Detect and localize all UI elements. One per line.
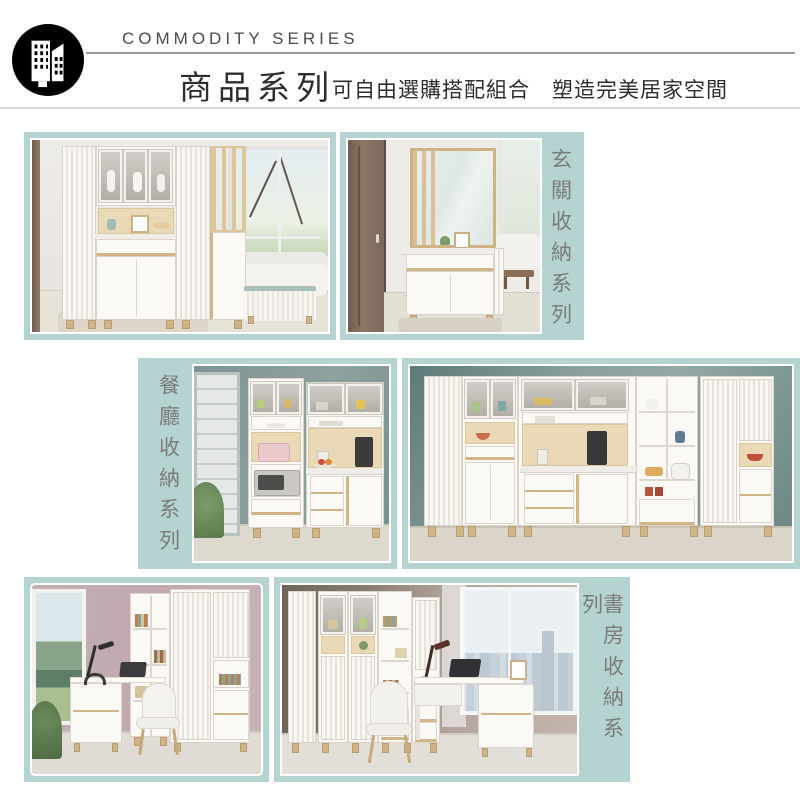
- cups: [319, 421, 343, 426]
- section-label-study: 書房收納系列: [581, 593, 623, 776]
- chair-seat: [136, 717, 180, 729]
- bottom-drawer: [639, 499, 695, 525]
- glass-sliding-door: [576, 380, 628, 410]
- desk-top: [414, 677, 524, 684]
- frame-entry-right: 玄關收納系列: [340, 132, 584, 340]
- open-niche: [213, 660, 249, 688]
- screen-base-cabinet: [210, 232, 246, 320]
- shelf-line: [381, 660, 409, 662]
- kettle: [671, 463, 690, 480]
- teapot: [645, 399, 659, 409]
- niche: [351, 636, 375, 654]
- jar-teal: [498, 401, 506, 411]
- jar-green: [472, 402, 480, 411]
- entry-tall-cabinet: [62, 146, 96, 320]
- cabinet-leg: [430, 743, 437, 753]
- cabinet-leg: [66, 320, 74, 329]
- cabinet-leg: [160, 737, 167, 746]
- cabinet-leg: [428, 526, 436, 537]
- plant-decor: [440, 236, 450, 245]
- glass-sliding-door: [308, 384, 344, 414]
- label-column: 玄關收納系列: [542, 138, 578, 334]
- open-shelf-unit: [636, 376, 698, 526]
- books: [135, 614, 148, 627]
- pedestal-leg: [112, 743, 118, 752]
- coffee-maker: [587, 431, 607, 465]
- open-shelf: [251, 416, 301, 430]
- lower-doors: [96, 256, 176, 320]
- glass-door: [465, 380, 489, 418]
- bench-leg: [306, 316, 312, 324]
- shelf-divider: [666, 379, 668, 479]
- cabinet-leg: [372, 528, 380, 538]
- vase-decor: [107, 219, 116, 230]
- drawer: [251, 499, 301, 515]
- doors: [465, 462, 515, 524]
- series-title-zh: 商品系列: [179, 61, 335, 109]
- cabinet-leg: [292, 743, 299, 753]
- door-groove: [358, 146, 360, 326]
- striped-door: [173, 592, 211, 740]
- cabinet-leg: [182, 320, 190, 329]
- glass-door: [124, 150, 147, 202]
- door-divider: [450, 274, 451, 312]
- drawer-stack: [213, 690, 249, 740]
- mirror-slats: [413, 151, 439, 245]
- chair: [370, 681, 408, 729]
- section-label-entry: 玄關收納系列: [550, 148, 571, 334]
- desk-pedestal: [478, 684, 534, 748]
- frame-dining-right: [402, 358, 800, 569]
- photo-frame-decor: [131, 215, 149, 233]
- desk-pedestal: [70, 683, 122, 743]
- striped-tall-cabinet: [288, 591, 316, 743]
- photo-frame-decor: [510, 660, 527, 680]
- hat-decor: [153, 222, 171, 229]
- microwave: [254, 470, 300, 496]
- photo-dining-wall-storage: [408, 364, 794, 563]
- hutch-door: [346, 476, 382, 526]
- photo-study-desk-bookcase: [30, 583, 263, 776]
- series-title-en: COMMODITY SERIES: [122, 29, 359, 49]
- cabinet-leg: [640, 526, 648, 537]
- frame-dining-left: 餐廳收納系列: [138, 358, 397, 569]
- cabinet-leg: [382, 743, 389, 753]
- niche: [465, 422, 515, 444]
- shoe-drawer: [406, 254, 494, 271]
- laptop: [119, 662, 147, 677]
- drawer-row: [96, 239, 176, 256]
- books: [219, 674, 241, 685]
- buildings-icon: [19, 31, 77, 89]
- door-divider: [136, 259, 137, 317]
- hutch-back-panel: [522, 424, 628, 466]
- photo-dining-hutch: [192, 364, 391, 563]
- drawer-stack: [524, 474, 574, 524]
- cabinet-leg: [468, 526, 476, 537]
- glass-door: [491, 380, 515, 418]
- tree-branch: [249, 160, 277, 217]
- cabinet-leg: [322, 743, 329, 753]
- drawer-line: [311, 509, 343, 511]
- frame-study-left: [24, 577, 269, 782]
- drawer-line: [740, 494, 771, 496]
- rug: [398, 318, 502, 332]
- jar-red: [645, 487, 653, 496]
- open-shelf-niche: [98, 208, 174, 234]
- pedestal-leg: [526, 748, 532, 757]
- bread-basket: [645, 467, 663, 476]
- cabinet-leg: [704, 526, 712, 537]
- glass-sliding-door: [522, 380, 574, 410]
- jar-green: [257, 400, 264, 408]
- dish-stack: [316, 402, 328, 410]
- entry-mid-cabinet: [176, 146, 210, 320]
- vase: [133, 172, 142, 192]
- brand-logo: [12, 24, 84, 96]
- desk-lamp-head: [98, 641, 115, 651]
- drawer-line: [214, 713, 248, 715]
- books: [383, 616, 397, 627]
- glass-cabinet: [318, 591, 348, 743]
- cabinet-leg: [764, 526, 772, 537]
- jars: [535, 416, 555, 423]
- hutch-door: [576, 474, 628, 524]
- frame-entry-left: [24, 132, 336, 340]
- toaster: [258, 443, 290, 462]
- niche: [739, 443, 772, 467]
- cabinet-leg: [292, 528, 300, 538]
- microwave-shelf: [251, 464, 301, 497]
- cabinet-leg: [524, 526, 532, 537]
- drawer-line: [311, 492, 343, 494]
- shelf-line: [381, 628, 409, 630]
- plant: [30, 701, 62, 759]
- bench-leg: [248, 316, 254, 324]
- door-edge: [32, 140, 40, 332]
- fruit: [318, 459, 325, 465]
- niche: [251, 432, 301, 462]
- desk-leg: [416, 706, 420, 740]
- glass-door: [351, 596, 375, 634]
- dish-stack: [590, 397, 606, 405]
- plant: [192, 482, 224, 538]
- cabinet-leg: [253, 528, 261, 538]
- cabinet-leg: [352, 743, 359, 753]
- table-leg: [526, 277, 529, 289]
- dish-yellow: [534, 398, 552, 405]
- microwave-window: [258, 475, 284, 490]
- niche: [321, 636, 345, 654]
- pedestal-leg: [482, 748, 488, 757]
- cabinet-leg: [622, 526, 630, 537]
- mirror-panel: [410, 148, 496, 248]
- photo-study-city-view: [280, 583, 579, 776]
- cabinet-leg: [104, 320, 112, 329]
- drawer-line: [525, 490, 573, 492]
- plate: [266, 423, 286, 428]
- drawer: [465, 446, 515, 460]
- coffee-machine: [355, 437, 373, 467]
- cabinet-leg: [240, 743, 247, 752]
- striped-door: [415, 600, 437, 670]
- cabinet-leg: [166, 320, 174, 329]
- canister: [537, 449, 548, 465]
- counter-top: [306, 468, 384, 475]
- drawer-line: [525, 507, 573, 509]
- table-leg: [504, 277, 507, 289]
- drawer-line: [481, 713, 531, 715]
- striped-door: [321, 656, 345, 740]
- coffee-table: [500, 270, 534, 277]
- door-divider: [490, 465, 491, 521]
- box-decor: [328, 620, 338, 629]
- city-tower: [542, 631, 554, 711]
- striped-door: [213, 592, 249, 658]
- books: [154, 650, 166, 663]
- cabinet-leg: [690, 526, 698, 537]
- pitcher-blue: [675, 431, 685, 443]
- page: COMMODITY SERIES 商品系列 可自由選購搭配組合 塑造完美居家空間: [0, 0, 800, 800]
- cabinet-leg: [312, 528, 320, 538]
- series-tagline: 可自由選購搭配組合 塑造完美居家空間: [332, 74, 728, 104]
- vase: [157, 174, 165, 192]
- shoe-doors: [406, 271, 494, 315]
- cabinet-leg: [508, 526, 516, 537]
- open-shelf: [522, 412, 628, 424]
- vase: [107, 170, 115, 192]
- cabinet-leg: [456, 526, 464, 537]
- jar-decor: [359, 618, 367, 629]
- pedestal-leg: [74, 743, 80, 752]
- jar-amber: [284, 399, 291, 408]
- open-shelf: [308, 416, 382, 428]
- fruit: [325, 459, 332, 465]
- glass-door: [277, 382, 301, 414]
- cabinet-leg: [88, 320, 96, 329]
- counter-top: [520, 466, 636, 473]
- glass-door: [321, 596, 345, 634]
- header-rule: [86, 52, 795, 54]
- right-cabinet: [700, 376, 774, 526]
- door-handle: [376, 234, 379, 243]
- photo-entry-shoe-cabinet: [346, 138, 542, 334]
- bowl: [476, 433, 490, 440]
- frame-study-right: 書房收納系列: [274, 577, 630, 782]
- glass-door: [251, 382, 275, 414]
- glass-door: [149, 150, 172, 202]
- cabinet-leg: [234, 320, 242, 329]
- section-label-dining: 餐廳收納系列: [158, 374, 179, 563]
- drawer-stack: [310, 476, 344, 526]
- plant-decor: [359, 641, 368, 650]
- striped-door: [739, 379, 772, 441]
- jar-red: [655, 487, 663, 496]
- drawer-line: [73, 710, 119, 712]
- striped-tall-cabinet: [424, 376, 462, 526]
- glass-door: [99, 150, 122, 202]
- fruit-bowl: [747, 454, 763, 461]
- tree-branch: [279, 155, 303, 224]
- desk-open-shelf: [414, 684, 462, 706]
- box-decor: [395, 648, 407, 658]
- photo-entry-living-room: [30, 138, 330, 334]
- glass-sliding-door: [346, 384, 382, 414]
- striped-door: [703, 379, 737, 523]
- label-column: 書房收納系列: [579, 583, 624, 776]
- side-striped-panel: [494, 248, 504, 315]
- entry-door: [348, 140, 386, 332]
- laptop: [449, 659, 482, 677]
- study-tall-cabinets: [170, 589, 250, 743]
- drawer-stack: [739, 469, 772, 523]
- frame-decor: [454, 232, 470, 249]
- label-column: 餐廳收納系列: [144, 364, 192, 563]
- cup-yellow: [356, 400, 365, 409]
- slat-screen: [210, 146, 246, 232]
- header-bottom-rule: [0, 107, 800, 109]
